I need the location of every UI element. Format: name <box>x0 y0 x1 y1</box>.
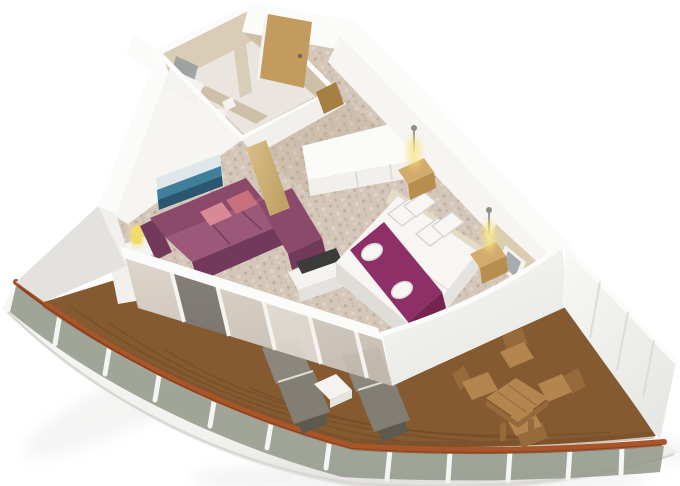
entry-door-handle <box>298 54 302 58</box>
wall-lamp-fixture <box>486 207 492 213</box>
railing-post <box>621 447 622 474</box>
wall-lamp-fixture <box>411 125 417 131</box>
table-leg <box>528 418 534 438</box>
table-lamp-shade <box>132 226 142 244</box>
railing-post <box>568 450 570 478</box>
table-leg <box>500 422 506 442</box>
railing-post <box>387 450 390 479</box>
entry-door <box>260 14 312 88</box>
railing-post <box>448 452 450 481</box>
floorplan-svg <box>0 0 680 486</box>
wall-lamp-glow <box>480 216 498 256</box>
railing-post <box>508 452 510 481</box>
suite-floorplan-render <box>0 0 680 486</box>
wall-lamp-glow <box>405 132 423 172</box>
